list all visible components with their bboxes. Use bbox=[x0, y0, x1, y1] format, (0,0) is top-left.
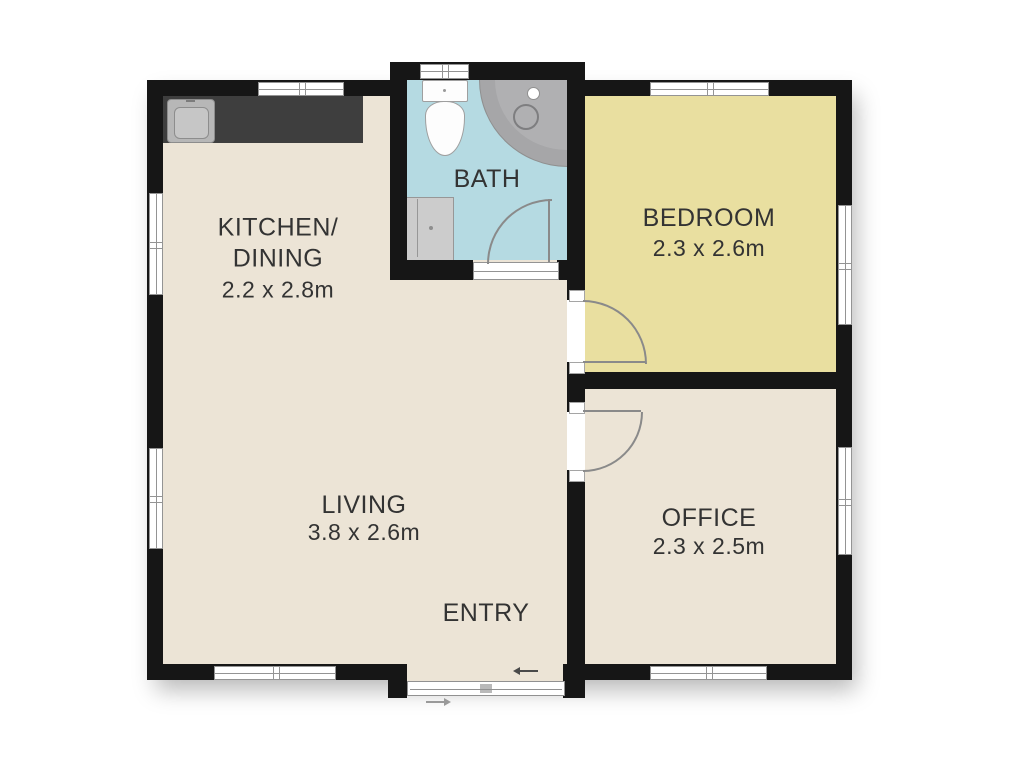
office-name: OFFICE bbox=[653, 504, 765, 532]
entry-label: ENTRY bbox=[443, 598, 530, 628]
window-office-right bbox=[838, 447, 852, 555]
bedroom-door-leaf bbox=[583, 361, 645, 363]
bath-vanity-knob-icon bbox=[429, 226, 433, 230]
wall-left bbox=[147, 80, 163, 680]
bath-door-threshold bbox=[473, 262, 559, 280]
wall-bath-bottom-left bbox=[390, 260, 473, 280]
wall-entry-stub-left bbox=[388, 680, 407, 698]
toilet-button-icon bbox=[443, 89, 446, 92]
office-door-leaf bbox=[583, 410, 641, 412]
entry-floor bbox=[407, 664, 563, 682]
entry-name: ENTRY bbox=[443, 598, 530, 628]
bedroom-name: BEDROOM bbox=[643, 203, 776, 233]
entry-arrow-outside-icon bbox=[426, 701, 444, 703]
bedroom-label: BEDROOM 2.3 x 2.6m bbox=[643, 203, 776, 263]
window-bedroom-right bbox=[838, 205, 852, 325]
entry-arrow-inside-icon bbox=[520, 670, 538, 672]
wall-hall-lower bbox=[567, 470, 585, 680]
window-office-bottom bbox=[650, 666, 767, 680]
kitchen-faucet-icon bbox=[186, 100, 195, 102]
kitchen-dining-name-line1: KITCHEN/ bbox=[218, 213, 339, 244]
window-kitchen-top bbox=[258, 82, 344, 96]
bath-name: BATH bbox=[454, 164, 521, 194]
office-dims: 2.3 x 2.5m bbox=[653, 532, 765, 560]
wall-bath-left bbox=[390, 80, 407, 260]
living-name: LIVING bbox=[308, 492, 420, 519]
wall-hall-upper bbox=[567, 62, 585, 300]
kitchen-dining-label: KITCHEN/ DINING 2.2 x 2.8m bbox=[218, 213, 339, 306]
kitchen-dining-dims: 2.2 x 2.8m bbox=[218, 275, 339, 306]
kitchen-dining-name-line2: DINING bbox=[218, 244, 339, 275]
living-dims: 3.8 x 2.6m bbox=[308, 519, 420, 546]
window-living-left bbox=[149, 448, 163, 549]
window-living-bottom bbox=[214, 666, 336, 680]
bath-door-leaf bbox=[548, 199, 550, 262]
shower-head-icon bbox=[527, 87, 540, 100]
floor-plan: KITCHEN/ DINING 2.2 x 2.8m BATH BEDROOM … bbox=[0, 0, 1024, 768]
wall-entry-stub-right bbox=[563, 680, 585, 698]
living-label: LIVING 3.8 x 2.6m bbox=[308, 492, 420, 546]
bedroom-dims: 2.3 x 2.6m bbox=[643, 233, 776, 263]
window-bedroom-top bbox=[650, 82, 769, 96]
shower-drain-icon bbox=[513, 104, 539, 130]
bath-label: BATH bbox=[454, 164, 521, 194]
window-kitchen-left bbox=[149, 193, 163, 295]
kitchen-sink-bowl-icon bbox=[174, 107, 209, 139]
wall-bedroom-office bbox=[567, 372, 852, 389]
window-bath-top bbox=[420, 64, 469, 79]
entry-sliding-door bbox=[407, 681, 565, 696]
bath-vanity-divider bbox=[417, 199, 418, 257]
office-label: OFFICE 2.3 x 2.5m bbox=[653, 504, 765, 560]
